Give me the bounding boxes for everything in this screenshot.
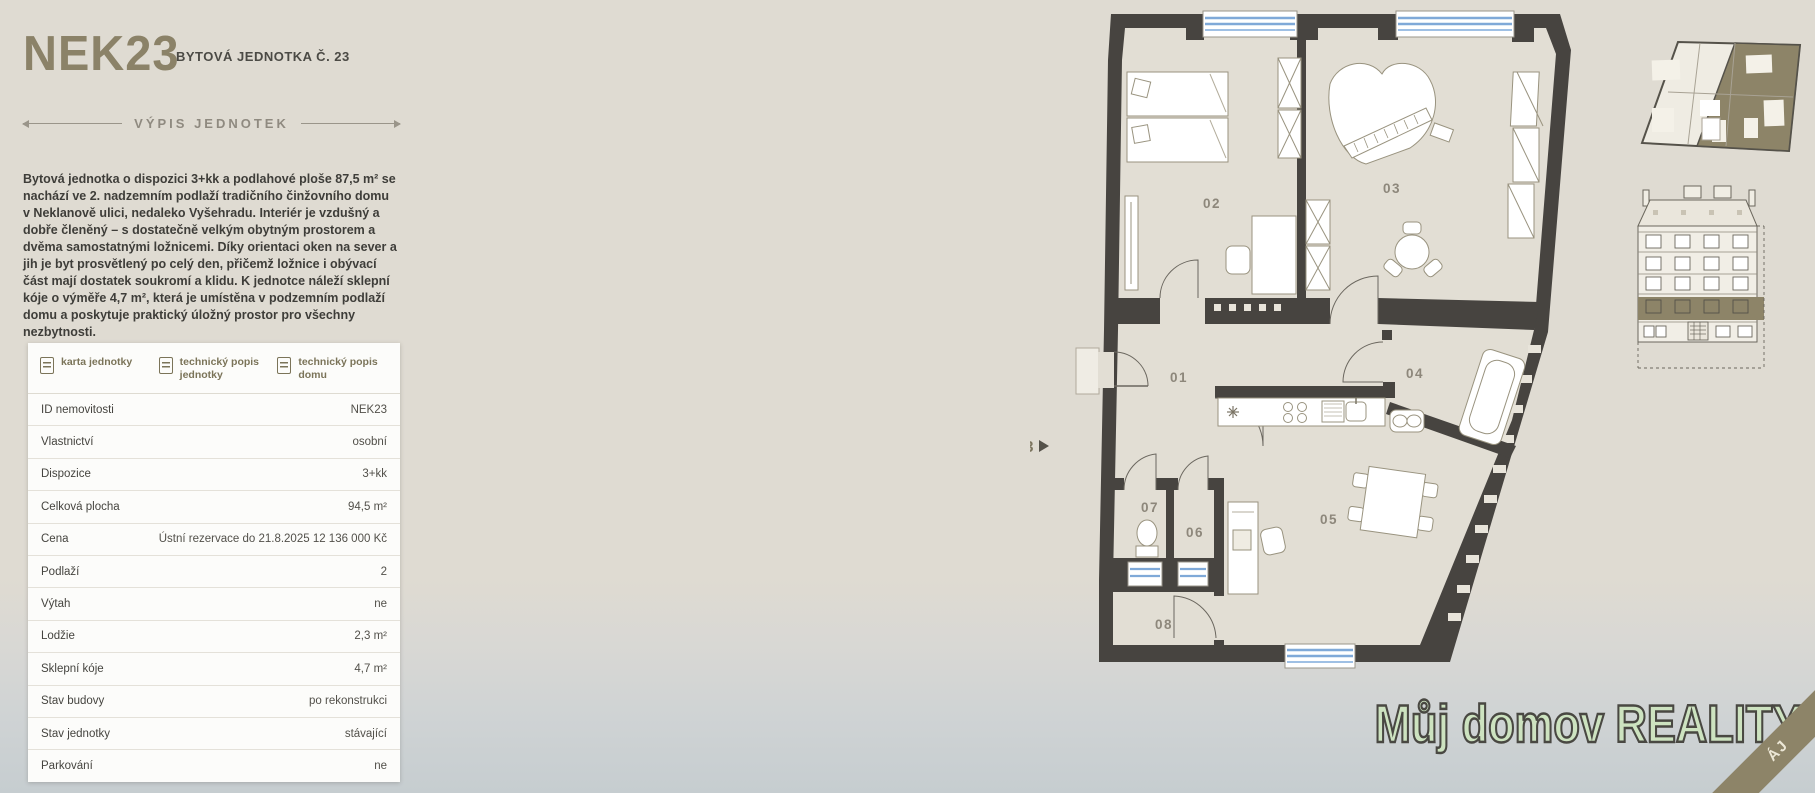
table-row: Vlastnictvíosobní <box>28 426 400 458</box>
mini-plan-stair-core <box>1702 118 1720 140</box>
unit-description: Bytová jednotka o dispozici 3+kk a podla… <box>23 171 397 341</box>
unit-title: NEK23 <box>23 24 180 82</box>
row-value: osobní <box>352 436 387 448</box>
entry-arrow-icon <box>1039 440 1049 452</box>
left-arrow-line <box>23 123 122 124</box>
ribbon-label: ÁJ <box>1699 673 1815 793</box>
room-label-06: 06 <box>1186 525 1204 540</box>
table-row: Stav jednotkystávající <box>28 718 400 750</box>
building-elevation <box>1630 185 1815 380</box>
room-label-05: 05 <box>1320 512 1338 527</box>
table-row: CenaÚstní rezervace do 21.8.2025 12 136 … <box>28 524 400 556</box>
floor-plan: NEK23 01 02 03 04 05 06 07 08 <box>1030 5 1605 675</box>
row-value: ne <box>374 598 387 610</box>
room-label-07: 07 <box>1141 500 1159 515</box>
right-arrow-line <box>301 123 400 124</box>
room-label-04: 04 <box>1406 366 1424 381</box>
unit-floor-highlight <box>1638 297 1764 320</box>
section-heading-label: VÝPIS JEDNOTEK <box>134 116 289 131</box>
document-link-label: karta jednotky <box>61 356 132 369</box>
document-links-row: karta jednotky technický popis jednotky … <box>28 343 400 394</box>
window-bottom <box>1285 644 1355 668</box>
toilet <box>1136 520 1158 557</box>
document-icon <box>277 357 291 374</box>
row-label: Parkování <box>41 760 93 772</box>
section-heading: VÝPIS JEDNOTEK <box>23 116 400 131</box>
row-value: stávající <box>345 728 387 740</box>
unit-entry-label: NEK23 <box>1030 439 1049 456</box>
window-top-left <box>1203 11 1297 37</box>
window-top-right <box>1396 11 1514 37</box>
unit-entry-text: NEK23 <box>1030 439 1034 456</box>
row-label: Celková plocha <box>41 501 120 513</box>
row-value: 94,5 m² <box>348 501 387 513</box>
row-label: Výtah <box>41 598 70 610</box>
window-room06 <box>1178 562 1208 586</box>
table-row: Parkováníne <box>28 750 400 781</box>
table-row: Dispozice3+kk <box>28 459 400 491</box>
link-karta-jednotky[interactable]: karta jednotky <box>40 356 151 374</box>
row-label: Lodžie <box>41 630 75 642</box>
table-row: Stav budovypo rekonstrukci <box>28 686 400 718</box>
kitchen-sink <box>1322 398 1366 422</box>
row-label: Dispozice <box>41 468 91 480</box>
row-label: Vlastnictví <box>41 436 93 448</box>
row-label: Stav jednotky <box>41 728 110 740</box>
row-value: NEK23 <box>351 404 387 416</box>
floor-overview-mini-plan <box>1635 25 1815 165</box>
row-value: 2 <box>381 566 387 578</box>
row-label: Sklepní kóje <box>41 663 104 675</box>
corner-ribbon: ÁJ <box>1685 673 1815 793</box>
table-row: Celková plocha94,5 m² <box>28 491 400 523</box>
table-row: Podlaží2 <box>28 556 400 588</box>
room-label-03: 03 <box>1383 181 1401 196</box>
table-row: Lodžie2,3 m² <box>28 621 400 653</box>
row-label: Stav budovy <box>41 695 104 707</box>
row-value: ne <box>374 760 387 772</box>
row-label: ID nemovitosti <box>41 404 114 416</box>
room-label-08: 08 <box>1155 617 1173 632</box>
room-label-01: 01 <box>1170 370 1188 385</box>
window-room07 <box>1128 562 1162 586</box>
room-label-02: 02 <box>1203 196 1221 211</box>
document-link-label: technický popis domu <box>298 356 388 382</box>
link-technicky-popis-jednotky[interactable]: technický popis jednotky <box>159 356 270 382</box>
table-row: Sklepní kóje4,7 m² <box>28 653 400 685</box>
row-label: Podlaží <box>41 566 79 578</box>
link-technicky-popis-domu[interactable]: technický popis domu <box>277 356 388 382</box>
table-row: Výtahne <box>28 588 400 620</box>
document-link-label: technický popis jednotky <box>180 356 270 382</box>
row-value: po rekonstrukci <box>309 695 387 707</box>
kitchen-counter <box>1218 398 1385 426</box>
unit-subtitle: BYTOVÁ JEDNOTKA Č. 23 <box>176 49 350 64</box>
row-label: Cena <box>41 533 69 545</box>
row-value: 2,3 m² <box>354 630 387 642</box>
table-row: ID nemovitostiNEK23 <box>28 394 400 426</box>
row-value: 4,7 m² <box>354 663 387 675</box>
document-icon <box>40 357 54 374</box>
details-card: karta jednotky technický popis jednotky … <box>28 343 400 782</box>
logo-text-muj-domov: Můj domov <box>1374 695 1603 754</box>
row-value: Ústní rezervace do 21.8.2025 12 136 000 … <box>159 533 387 545</box>
mirror-rail <box>1125 196 1138 290</box>
document-icon <box>159 357 173 374</box>
row-value: 3+kk <box>362 468 387 480</box>
